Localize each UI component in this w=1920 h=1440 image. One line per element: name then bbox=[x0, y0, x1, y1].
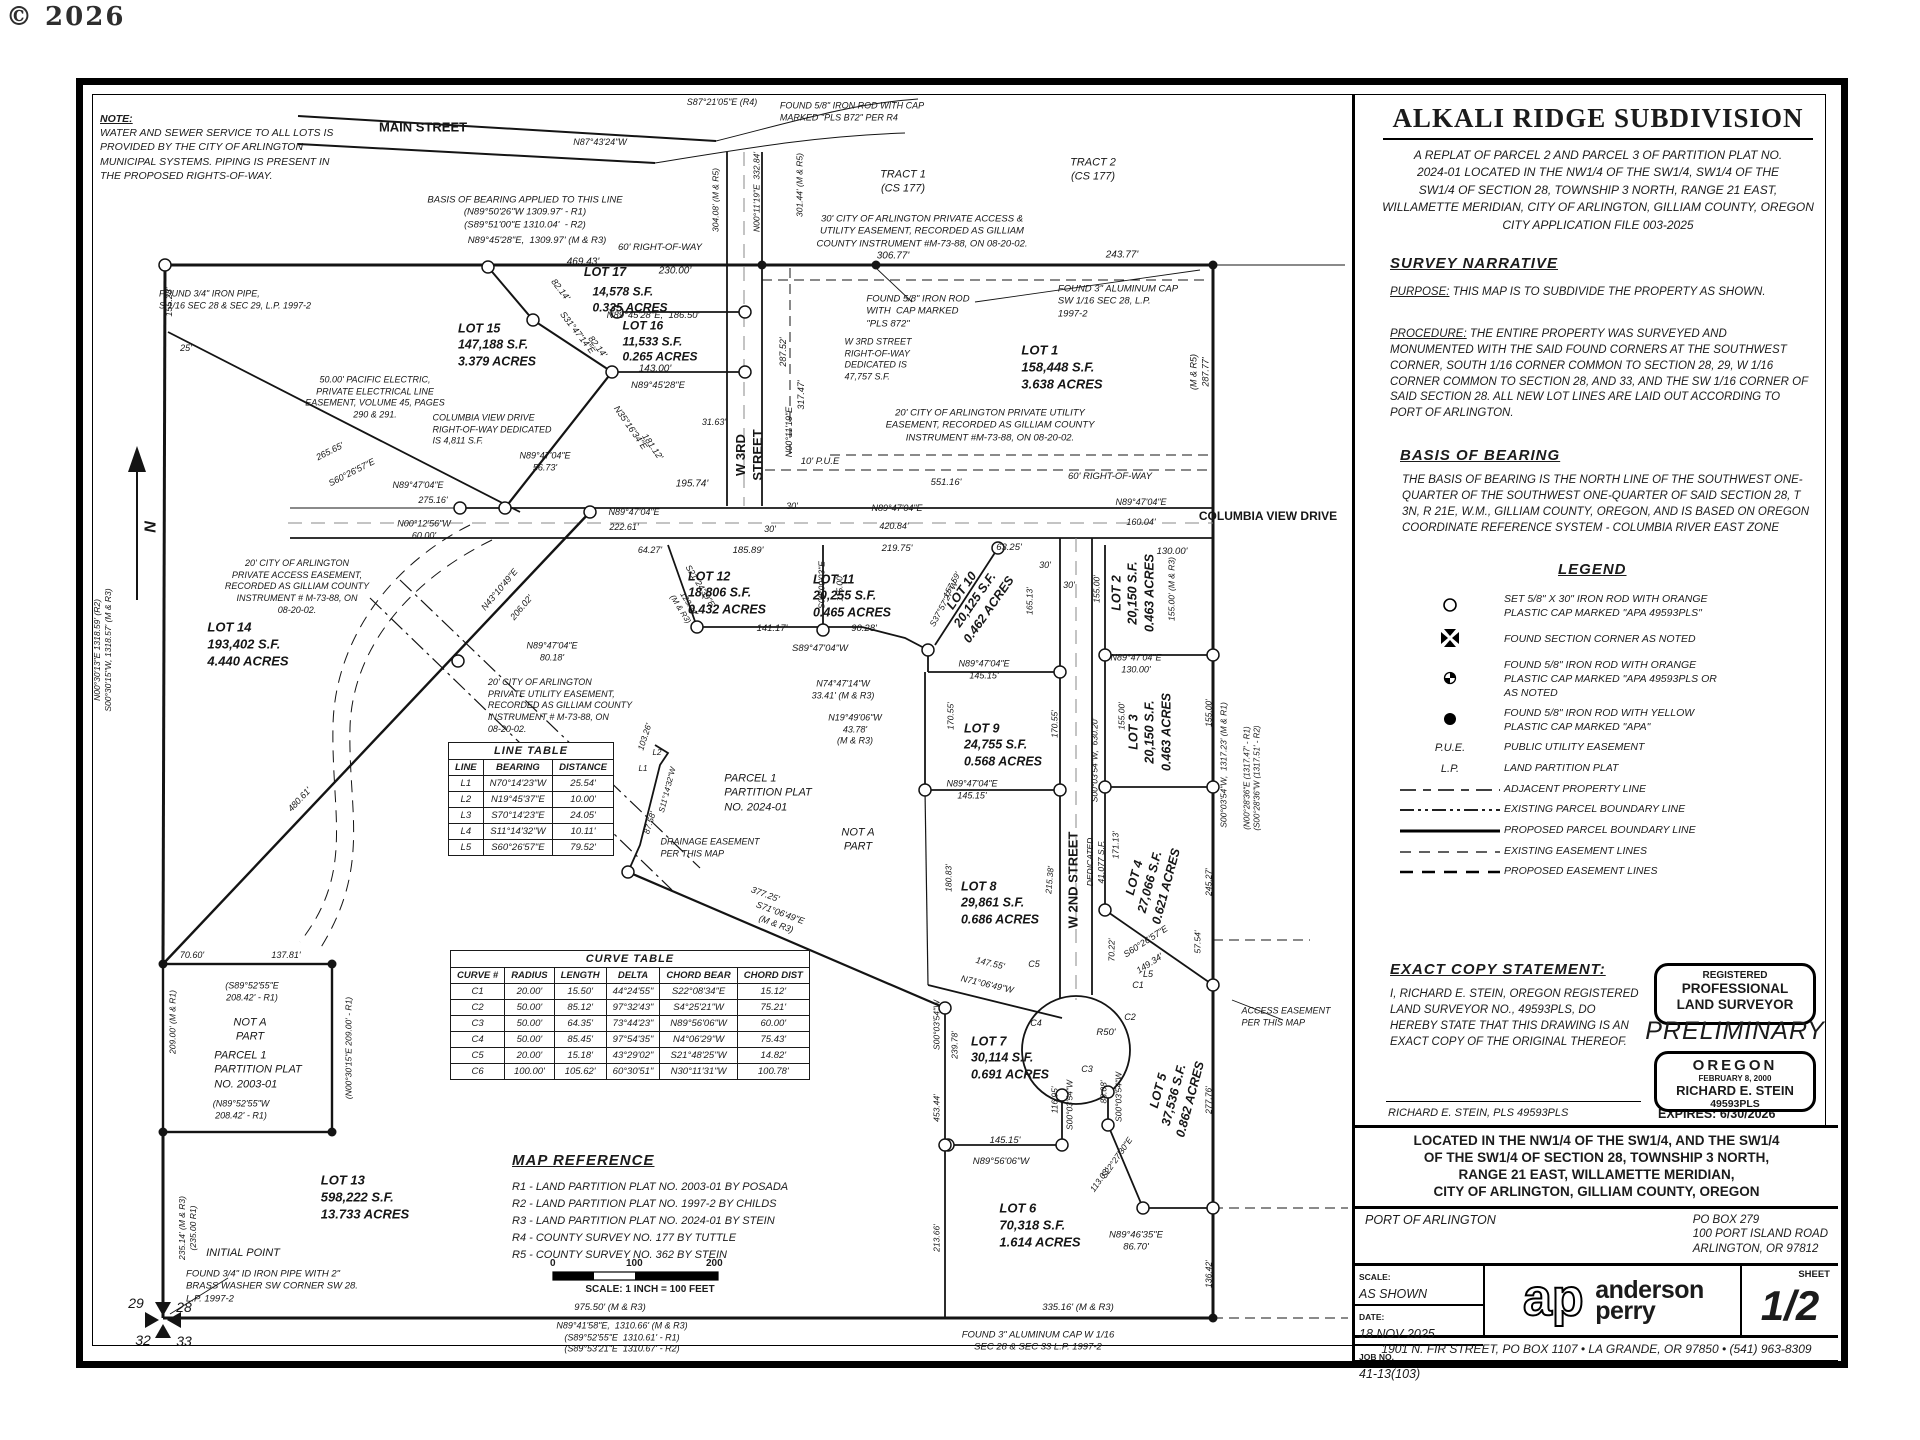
legend-item: PROPOSED PARCEL BOUNDARY LINE bbox=[1396, 824, 1826, 838]
svg-text:ap: ap bbox=[1523, 1269, 1584, 1327]
scale-bar: 0 100 200 SCALE: 1 INCH = 100 FEET bbox=[540, 1258, 760, 1295]
map-label: 245.27' bbox=[1203, 868, 1214, 896]
map-label: N89°47'04"E 80.18' bbox=[526, 640, 577, 663]
scale-caption: SCALE: 1 INCH = 100 FEET bbox=[540, 1284, 760, 1295]
legend-item-text: FOUND SECTION CORNER AS NOTED bbox=[1504, 633, 1696, 647]
map-label: 29 bbox=[128, 1294, 144, 1312]
LP: L.P. bbox=[1396, 763, 1504, 775]
legend-item: FOUND 5/8" IRON ROD WITH YELLOW PLASTIC … bbox=[1396, 707, 1826, 734]
map-label: 70.22' bbox=[1106, 939, 1117, 962]
found-rod-yellow-icon bbox=[1396, 711, 1504, 730]
found-rod-orange-icon bbox=[1396, 670, 1504, 689]
map-label: N89°47'04"E 145.15' bbox=[958, 658, 1009, 681]
map-label: 20' CITY OF ARLINGTON PRIVATE UTILITY EA… bbox=[886, 407, 1095, 444]
legend-item-text: PROPOSED EASEMENT LINES bbox=[1504, 865, 1657, 879]
map-label: C2 bbox=[1124, 1012, 1136, 1024]
map-label: C5 bbox=[1028, 959, 1040, 971]
client-name: PORT OF ARLINGTON bbox=[1365, 1213, 1496, 1258]
map-label: N bbox=[142, 521, 163, 533]
line-proposed-parcel-sample bbox=[1396, 825, 1504, 837]
title-block-middle: SCALE:AS SHOWN DATE:18 NOV 2025 JOB NO.4… bbox=[1352, 1266, 1838, 1338]
map-label: 136.42' bbox=[1203, 1260, 1214, 1288]
line-adjacent-sample bbox=[1396, 784, 1504, 796]
map-label: FOUND 3" ALUMINUM CAP SW 1/16 SEC 28, L.… bbox=[1058, 283, 1178, 320]
map-reference-line: R3 - LAND PARTITION PLAT NO. 2024-01 BY … bbox=[512, 1213, 932, 1230]
map-reference-heading: MAP REFERENCE bbox=[512, 1152, 932, 1169]
set-iron-rod-icon bbox=[1396, 596, 1504, 617]
map-label: DRAINAGE EASEMENT PER THIS MAP bbox=[660, 836, 759, 859]
map-label: 60' RIGHT-OF-WAY bbox=[1068, 471, 1152, 483]
map-label: N89°47'04"E bbox=[392, 480, 443, 492]
map-label: C3 bbox=[1081, 1064, 1093, 1076]
legend-item-text: FOUND 5/8" IRON ROD WITH YELLOW PLASTIC … bbox=[1504, 707, 1694, 734]
exact-copy-text: I, RICHARD E. STEIN, OREGON REGISTERED L… bbox=[1390, 987, 1645, 1050]
map-label: 230.00' bbox=[659, 265, 692, 278]
line-existing-parcel-sample bbox=[1396, 804, 1504, 816]
legend-item-text: LAND PARTITION PLAT bbox=[1504, 762, 1618, 776]
legend-item: P.U.E.PUBLIC UTILITY EASEMENT bbox=[1396, 741, 1826, 755]
map-label: FOUND 5/8" IRON ROD WITH CAP MARKED "PLS… bbox=[866, 293, 969, 330]
legend-item: EXISTING PARCEL BOUNDARY LINE bbox=[1396, 803, 1826, 817]
legend-item: ADJACENT PROPERTY LINE bbox=[1396, 783, 1826, 797]
map-label: S60°26'57"E bbox=[1122, 923, 1171, 960]
map-label: 155.00' bbox=[1091, 575, 1102, 603]
map-label: N89°41'58"E, 1310.66' (M & R3) (S89°52'5… bbox=[556, 1320, 687, 1355]
PUE: P.U.E. bbox=[1396, 742, 1504, 754]
map-label: 57.54' bbox=[1192, 931, 1203, 954]
map-label: 160.04' bbox=[1126, 517, 1155, 529]
map-label: 243.77' bbox=[1106, 249, 1139, 262]
map-label: 185.89' bbox=[733, 545, 764, 557]
map-label: (M & R5) 287.77' bbox=[1188, 354, 1211, 390]
curve-table: CURVE TABLECURVE #RADIUSLENGTHDELTACHORD… bbox=[450, 950, 810, 1080]
stamp-number: 49593PLS bbox=[1657, 1098, 1813, 1110]
map-label: 551.16' bbox=[931, 477, 962, 489]
map-label: LOT 15 147,188 S.F. 3.379 ACRES bbox=[458, 321, 536, 370]
legend-item: FOUND 5/8" IRON ROD WITH ORANGE PLASTIC … bbox=[1396, 659, 1826, 700]
map-label: 30' bbox=[1039, 560, 1051, 572]
map-label: TRACT 1 (CS 177) bbox=[880, 168, 926, 197]
map-label: 195.74' bbox=[676, 478, 709, 491]
map-label: LOT 7 30,114 S.F. 0.691 ACRES bbox=[971, 1034, 1049, 1083]
map-label: 30' bbox=[786, 501, 798, 513]
map-label: N89°45'28"E bbox=[631, 380, 685, 392]
scale-value: AS SHOWN bbox=[1359, 1287, 1427, 1301]
signature-name: RICHARD E. STEIN, PLS 49593PLS bbox=[1388, 1107, 1568, 1119]
sheet-number: 1/2 bbox=[1742, 1282, 1838, 1330]
map-label: S00°03'54"W bbox=[931, 1000, 942, 1050]
map-label: W 2ND STREET bbox=[1066, 832, 1083, 929]
map-label: TRACT 2 (CS 177) bbox=[1070, 156, 1116, 185]
map-label: 301.44' (M & R5) bbox=[794, 153, 805, 217]
scale-tick-0: 0 bbox=[550, 1258, 556, 1269]
section-corner-icon bbox=[1396, 627, 1504, 652]
map-reference-line: R1 - LAND PARTITION PLAT NO. 2003-01 BY … bbox=[512, 1179, 932, 1196]
title-block: LOCATED IN THE NW1/4 OF THE SW1/4, AND T… bbox=[1352, 1125, 1838, 1363]
map-label: 116.95' bbox=[1049, 1087, 1060, 1114]
map-label: 63.25' bbox=[996, 542, 1022, 554]
stamp-state: OREGON bbox=[1657, 1057, 1813, 1074]
map-label: 335.16' (M & R3) bbox=[1042, 1302, 1114, 1314]
map-label: 28 bbox=[176, 1298, 192, 1316]
map-label: N71°06'49"W bbox=[960, 973, 1015, 996]
map-label: 145.15' bbox=[990, 1135, 1021, 1147]
map-label: S00°03'54"W bbox=[1064, 1080, 1075, 1130]
map-label: S00°03'54"W, 630.20' bbox=[1089, 718, 1100, 803]
map-label: N89°47'04"E bbox=[1115, 497, 1166, 509]
note-heading: NOTE: bbox=[100, 112, 430, 126]
map-label: FOUND 3" ALUMINUM CAP W 1/16 SEC 28 & SE… bbox=[962, 1330, 1115, 1355]
legend-item: L.P.LAND PARTITION PLAT bbox=[1396, 762, 1826, 776]
map-label: 317.47' bbox=[796, 380, 808, 409]
legend-item-text: ADJACENT PROPERTY LINE bbox=[1504, 783, 1646, 797]
map-label: C4 bbox=[1030, 1018, 1042, 1030]
map-label: 420.84' bbox=[879, 521, 908, 533]
map-label: FOUND 5/8" IRON ROD WITH CAP MARKED "PLS… bbox=[780, 100, 924, 123]
map-label: S00°09'03"E bbox=[816, 561, 827, 609]
map-label: 165.13' bbox=[1024, 587, 1035, 615]
map-label: (N00°28'36"E (1317.47' - R1) (S00°28'36"… bbox=[1243, 725, 1264, 830]
map-label: N00°30'13"E 1318.59' (R2) S00°30'15"W, 1… bbox=[92, 588, 114, 711]
line-existing-easement-sample bbox=[1396, 846, 1504, 858]
map-label: COLUMBIA VIEW DRIVE bbox=[1199, 509, 1337, 525]
map-label: LOT 14 193,402 S.F. 4.440 ACRES bbox=[207, 620, 288, 671]
map-label: N89°47'04"E 130.00' bbox=[1110, 652, 1161, 675]
map-label: L1 bbox=[639, 764, 648, 774]
legend-item: FOUND SECTION CORNER AS NOTED bbox=[1396, 627, 1826, 652]
map-label: 115.00' bbox=[834, 575, 845, 602]
map-label: S71°06'49"E (M & R3) bbox=[750, 899, 806, 938]
map-label: 265.65' bbox=[314, 440, 345, 464]
map-label: W 3RD STREET RIGHT-OF-WAY DEDICATED IS 4… bbox=[844, 337, 911, 384]
map-label: 113.03' bbox=[1088, 1166, 1113, 1194]
plat-subtitle: A REPLAT OF PARCEL 2 AND PARCEL 3 OF PAR… bbox=[1358, 147, 1838, 234]
map-label: 219.75' bbox=[882, 543, 913, 555]
map-label: 170.55' bbox=[945, 702, 956, 730]
scale-label: SCALE: bbox=[1359, 1272, 1391, 1282]
map-label: N89°46'35"E 86.70' bbox=[1109, 1230, 1163, 1255]
map-label: 50.00' PACIFIC ELECTRIC, PRIVATE ELECTRI… bbox=[305, 375, 445, 422]
basis-of-bearing-text: THE BASIS OF BEARING IS THE NORTH LINE O… bbox=[1402, 473, 1812, 536]
map-label: PARCEL 1 PARTITION PLAT NO. 2024-01 bbox=[724, 772, 811, 815]
map-label: 206.02' bbox=[508, 593, 536, 623]
map-label: 30' CITY OF ARLINGTON PRIVATE ACCESS & U… bbox=[817, 213, 1028, 250]
map-label: 304.08' (M & R5) bbox=[710, 168, 721, 232]
map-label: LOT 4 27,066 S.F. 0.621 ACRES bbox=[1116, 838, 1183, 926]
map-label: N00°11'19"E 332.84' bbox=[751, 152, 762, 232]
map-label: 480.61' bbox=[286, 785, 314, 814]
map-label: 275.16' bbox=[418, 495, 447, 507]
ap-monogram-icon: ap bbox=[1521, 1269, 1595, 1333]
exact-copy-heading: EXACT COPY STATEMENT: bbox=[1390, 961, 1606, 978]
preliminary-label: PRELIMINARY bbox=[1640, 1017, 1830, 1046]
map-label: PARCEL 1 PARTITION PLAT NO. 2003-01 bbox=[214, 1049, 301, 1092]
legend-item-text: EXISTING EASEMENT LINES bbox=[1504, 845, 1647, 859]
surveyor-stamp-top: REGISTERED PROFESSIONAL LAND SURVEYOR bbox=[1654, 963, 1816, 1025]
map-label: N19°49'06"W 43.78' (M & R3) bbox=[828, 712, 882, 747]
map-label: 20' CITY OF ARLINGTON PRIVATE UTILITY EA… bbox=[488, 677, 632, 735]
map-label: N00°11'19"E bbox=[784, 407, 796, 457]
map-label: 222.61' bbox=[609, 522, 638, 534]
map-label: 155.00' bbox=[1116, 702, 1127, 730]
map-label: N89°47'04"E bbox=[871, 503, 922, 515]
map-label: 975.50' (M & R3) bbox=[574, 1302, 646, 1314]
map-label: 141.17' bbox=[757, 623, 788, 635]
sheet-label: SHEET bbox=[1798, 1269, 1830, 1280]
map-label: LOT 3 20,150 S.F. 0.463 ACRES bbox=[1126, 693, 1175, 771]
map-label: 82.14' bbox=[548, 277, 572, 303]
map-label: LOT 9 24,755 S.F. 0.568 ACRES bbox=[964, 721, 1042, 770]
map-label: 60' RIGHT-OF-WAY bbox=[618, 242, 702, 254]
date-label: DATE: bbox=[1359, 1312, 1384, 1322]
stamp-name: RICHARD E. STEIN bbox=[1657, 1083, 1813, 1098]
title-panel: ALKALI RIDGE SUBDIVISION A REPLAT OF PAR… bbox=[1358, 95, 1838, 1343]
map-label: 277.76' bbox=[1203, 1086, 1214, 1114]
basis-of-bearing-heading: BASIS OF BEARING bbox=[1400, 447, 1560, 464]
map-label: 170.55' bbox=[1049, 710, 1060, 738]
survey-narrative-purpose: PURPOSE: THIS MAP IS TO SUBDIVIDE THE PR… bbox=[1390, 285, 1810, 301]
map-label: 147.55' bbox=[974, 955, 1005, 973]
plat-title: ALKALI RIDGE SUBDIVISION bbox=[1364, 103, 1832, 140]
map-label: 31.63' bbox=[702, 417, 726, 429]
legend-items: SET 5/8" X 30" IRON ROD WITH ORANGE PLAS… bbox=[1396, 593, 1826, 886]
map-label: 180.83' bbox=[943, 864, 954, 892]
map-label: 306.77' bbox=[877, 250, 910, 263]
map-label: N89°45'28"E, 1309.97' (M & R3) bbox=[468, 235, 607, 247]
legend-item-text: EXISTING PARCEL BOUNDARY LINE bbox=[1504, 803, 1685, 817]
map-label: (N89°52'55"W 208.42' - R1) bbox=[213, 1098, 270, 1121]
stamp-registered: REGISTERED bbox=[1657, 970, 1813, 981]
map-label: S60°26'57"E bbox=[327, 456, 377, 489]
legend-item: PROPOSED EASEMENT LINES bbox=[1396, 865, 1826, 879]
map-label: BASIS OF BEARING APPLIED TO THIS LINE (N… bbox=[427, 194, 622, 231]
date-value: 18 NOV 2025 bbox=[1359, 1327, 1435, 1341]
legend-item-text: SET 5/8" X 30" IRON ROD WITH ORANGE PLAS… bbox=[1504, 593, 1708, 620]
legend-item: EXISTING EASEMENT LINES bbox=[1396, 845, 1826, 859]
map-label: 235.14' (M & R3) (235.00 R1) bbox=[177, 1196, 199, 1260]
map-label: 10' P.U.E bbox=[801, 456, 840, 468]
map-label: (S89°52'55"E 208.42' - R1) bbox=[225, 980, 279, 1003]
map-label: 215.38' bbox=[1043, 866, 1056, 894]
map-label: 239.78' bbox=[949, 1031, 960, 1059]
map-label: S00°03'54"W, 1317.23' (M & R1) bbox=[1218, 702, 1229, 828]
map-label: S87°21'05"E (R4) bbox=[687, 97, 758, 109]
map-label: C1 bbox=[1132, 980, 1144, 992]
signature-line bbox=[1386, 1101, 1641, 1102]
map-label: 90.28' bbox=[851, 623, 877, 635]
note-body: WATER AND SEWER SERVICE TO ALL LOTS IS P… bbox=[100, 126, 430, 183]
scale-tick-100: 100 bbox=[626, 1258, 643, 1269]
legend-item-text: PROPOSED PARCEL BOUNDARY LINE bbox=[1504, 824, 1696, 838]
map-label: L2 bbox=[653, 748, 662, 758]
map-label: 171.13' bbox=[1110, 831, 1121, 859]
client-address: PO BOX 279 100 PORT ISLAND ROAD ARLINGTO… bbox=[1693, 1213, 1828, 1258]
stamp-date: FEBRUARY 8, 2000 bbox=[1657, 1074, 1813, 1083]
map-label: 25' bbox=[180, 343, 192, 355]
line-table: LINE TABLELINEBEARINGDISTANCEL1N70°14'23… bbox=[448, 742, 614, 856]
map-label: LOT 5 37,536 S.F. 0.862 ACRES bbox=[1140, 1051, 1207, 1139]
map-label: N87°43'24"W bbox=[573, 137, 627, 149]
map-label: 20' CITY OF ARLINGTON PRIVATE ACCESS EAS… bbox=[225, 558, 369, 616]
map-label: LOT 8 29,861 S.F. 0.686 ACRES bbox=[961, 879, 1039, 928]
map-label: 30' bbox=[764, 524, 776, 536]
map-label: INITIAL POINT bbox=[206, 1246, 280, 1260]
job-value: 41-13(103) bbox=[1359, 1367, 1420, 1381]
map-label: 155.00' bbox=[1203, 699, 1214, 727]
map-label: 88.08' bbox=[1098, 1081, 1109, 1104]
map-label: 33 bbox=[176, 1332, 192, 1350]
firm-logo: ap anderson perry bbox=[1485, 1266, 1742, 1335]
map-label: 87.58' bbox=[641, 810, 659, 835]
map-label: 64.27' bbox=[638, 545, 662, 557]
map-reference-line: R4 - COUNTY SURVEY NO. 177 BY TUTTLE bbox=[512, 1230, 932, 1247]
map-label: LOT 17 bbox=[584, 264, 626, 280]
map-label: N89°47'04"E bbox=[608, 507, 659, 519]
map-label: DEDICATED 41,077 S.F. bbox=[1085, 838, 1107, 887]
map-label: 30' bbox=[1063, 580, 1075, 592]
map-label: S11°14'32"W bbox=[657, 766, 679, 814]
legend-item-text: PUBLIC UTILITY EASEMENT bbox=[1504, 741, 1644, 755]
map-label: LOT 6 70,318 S.F. 1.614 ACRES bbox=[999, 1201, 1080, 1252]
stamp-professional: PROFESSIONAL bbox=[1657, 981, 1813, 997]
line-proposed-easement-sample bbox=[1396, 866, 1504, 878]
map-label: FOUND 3/4" IRON PIPE, S 1/16 SEC 28 & SE… bbox=[159, 288, 311, 311]
map-label: 213.66' bbox=[931, 1224, 942, 1252]
general-note: NOTE: WATER AND SEWER SERVICE TO ALL LOT… bbox=[100, 112, 430, 183]
map-reference: MAP REFERENCE R1 - LAND PARTITION PLAT N… bbox=[512, 1152, 932, 1264]
map-label: N00°12'56"W 60.00' bbox=[397, 518, 451, 541]
title-block-client: PORT OF ARLINGTON PO BOX 279 100 PORT IS… bbox=[1352, 1209, 1838, 1267]
legend-item-text: FOUND 5/8" IRON ROD WITH ORANGE PLASTIC … bbox=[1504, 659, 1717, 700]
map-label: N89°47'04"E 56.73' bbox=[519, 450, 570, 473]
map-label: 287.52' bbox=[778, 337, 790, 366]
legend-heading: LEGEND bbox=[1558, 561, 1627, 578]
map-label: ACCESS EASEMENT PER THIS MAP bbox=[1241, 1005, 1330, 1028]
map-label: N89°47'04"E 145.15' bbox=[946, 778, 997, 801]
map-label: 155.28' bbox=[164, 287, 176, 316]
map-label: NOT A PART bbox=[841, 826, 874, 855]
survey-narrative-heading: SURVEY NARRATIVE bbox=[1390, 255, 1558, 272]
map-label: R50' bbox=[1096, 1027, 1115, 1039]
map-label: COLUMBIA VIEW DRIVE RIGHT-OF-WAY DEDICAT… bbox=[432, 412, 551, 447]
scale-tick-200: 200 bbox=[706, 1258, 723, 1269]
map-label: W 3RD STREET bbox=[733, 429, 767, 480]
map-label: LOT 2 20,150 S.F. 0.463 ACRES bbox=[1109, 554, 1158, 632]
map-label: 155.00' (M & R3) bbox=[1166, 557, 1177, 621]
map-label: S00°03'54"W bbox=[1113, 1072, 1124, 1122]
title-block-location: LOCATED IN THE NW1/4 OF THE SW1/4, AND T… bbox=[1352, 1128, 1838, 1209]
surveyor-stamp-bottom: OREGON FEBRUARY 8, 2000 RICHARD E. STEIN… bbox=[1654, 1051, 1816, 1112]
map-label: 143.00' bbox=[639, 363, 672, 376]
map-reference-line: R2 - LAND PARTITION PLAT NO. 1997-2 BY C… bbox=[512, 1196, 932, 1213]
map-label: LOT 1 158,448 S.F. 3.638 ACRES bbox=[1021, 343, 1102, 394]
map-label: LOT 16 11,533 S.F. 0.265 ACRES bbox=[623, 319, 698, 366]
legend-item: SET 5/8" X 30" IRON ROD WITH ORANGE PLAS… bbox=[1396, 593, 1826, 620]
map-label: 209.00' (M & R1) bbox=[167, 990, 178, 1054]
map-label: 32 bbox=[135, 1331, 151, 1349]
map-label: 453.44' bbox=[931, 1094, 942, 1122]
map-label: NOT A PART bbox=[233, 1016, 266, 1045]
map-label: N74°47'14"W 33.41' (M & R3) bbox=[812, 678, 875, 701]
sheet-cell: SHEET 1/2 bbox=[1742, 1266, 1838, 1335]
map-label: S89°47'04"W bbox=[792, 643, 848, 655]
map-label: (N00°30'15"E 209.00' - R1) bbox=[343, 997, 354, 1099]
map-label: 70.60' bbox=[180, 950, 204, 962]
map-label: LOT 13 598,222 S.F. 13.733 ACRES bbox=[321, 1173, 409, 1224]
map-label: 137.81' bbox=[271, 950, 300, 962]
stamp-land-surveyor: LAND SURVEYOR bbox=[1657, 997, 1813, 1013]
survey-narrative-procedure: PROCEDURE: THE ENTIRE PROPERTY WAS SURVE… bbox=[1390, 327, 1810, 422]
map-label: N89°56'06"W bbox=[973, 1156, 1030, 1168]
map-label: FOUND 3/4" ID IRON PIPE WITH 2" BRASS WA… bbox=[186, 1268, 358, 1305]
